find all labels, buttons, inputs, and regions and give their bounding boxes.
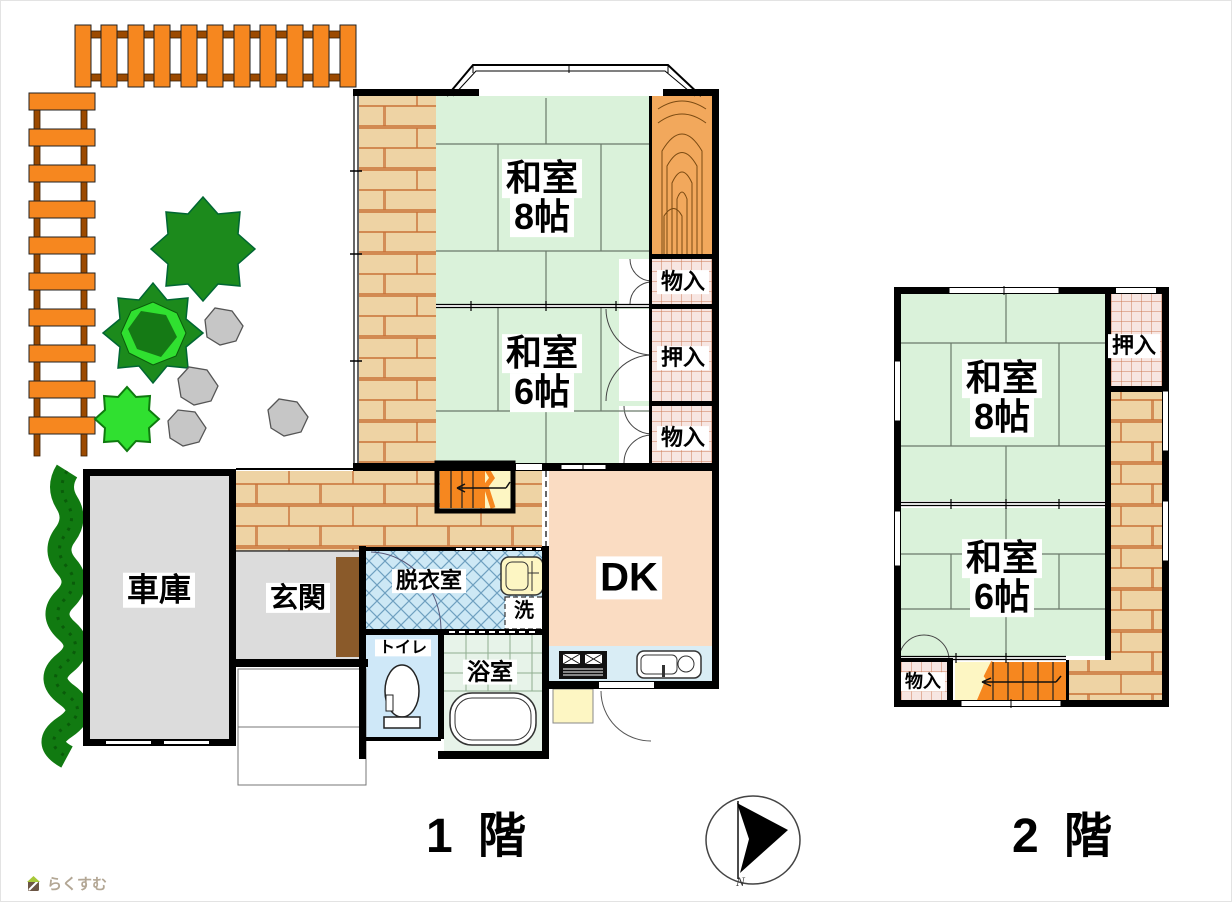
label-toilet: トイレ	[375, 639, 431, 656]
kitchen-step	[553, 689, 593, 723]
genkan-step	[336, 557, 359, 657]
label-washitsu8-2f: 和室8帖	[962, 359, 1042, 437]
tree	[151, 197, 255, 301]
label-storage-2f: 物入	[901, 672, 945, 691]
label-oshiire-2f: 押入	[1108, 334, 1160, 358]
caption-floor2: 2 階	[1008, 811, 1122, 863]
fence-top	[75, 25, 356, 87]
corridor-2f	[1111, 392, 1162, 660]
porch-steps	[238, 669, 366, 785]
washbasin-icon	[501, 557, 543, 595]
label-washitsu6-2f: 和室6帖	[962, 539, 1042, 617]
north-label: N	[736, 874, 745, 890]
sink-icon	[637, 651, 701, 678]
label-datsuishitsu: 脱衣室	[392, 569, 466, 593]
watermark-house-icon	[25, 875, 42, 892]
label-garage: 車庫	[123, 573, 195, 608]
label-bathroom: 浴室	[463, 660, 517, 685]
bay-window	[447, 65, 701, 96]
floor-plan-drawing	[1, 1, 1232, 902]
rock	[168, 410, 206, 446]
label-storage-bottom-1f: 物入	[657, 426, 709, 450]
rock	[178, 367, 218, 405]
label-laundry: 洗	[510, 601, 538, 623]
stove-icon	[559, 651, 607, 679]
watermark-text: らくすむ	[47, 873, 107, 894]
bush	[95, 387, 159, 451]
label-dk: DK	[596, 556, 662, 599]
compass	[706, 796, 800, 884]
watermark: らくすむ	[25, 873, 107, 894]
hedge	[53, 471, 77, 757]
rock	[205, 308, 243, 345]
kitchen-door-arc	[601, 691, 651, 741]
floor-plan-image: 和室8帖 和室6帖 物入 押入 物入 車庫 玄関 脱衣室 洗 トイレ 浴室 DK…	[0, 0, 1232, 902]
label-oshiire-1f: 押入	[657, 346, 709, 370]
rock	[268, 399, 308, 436]
label-storage-top-1f: 物入	[657, 270, 709, 294]
stairs-2f	[955, 662, 1066, 700]
caption-floor1: 1 階	[422, 811, 536, 863]
label-washitsu6-1f: 和室6帖	[502, 334, 582, 412]
fence-left	[29, 93, 95, 456]
toilet-fixture	[384, 665, 420, 728]
veranda-floor	[359, 96, 436, 463]
corridor-2f-bottom	[1069, 660, 1162, 700]
label-washitsu8-1f: 和室8帖	[502, 159, 582, 237]
label-genkan: 玄関	[266, 583, 330, 613]
